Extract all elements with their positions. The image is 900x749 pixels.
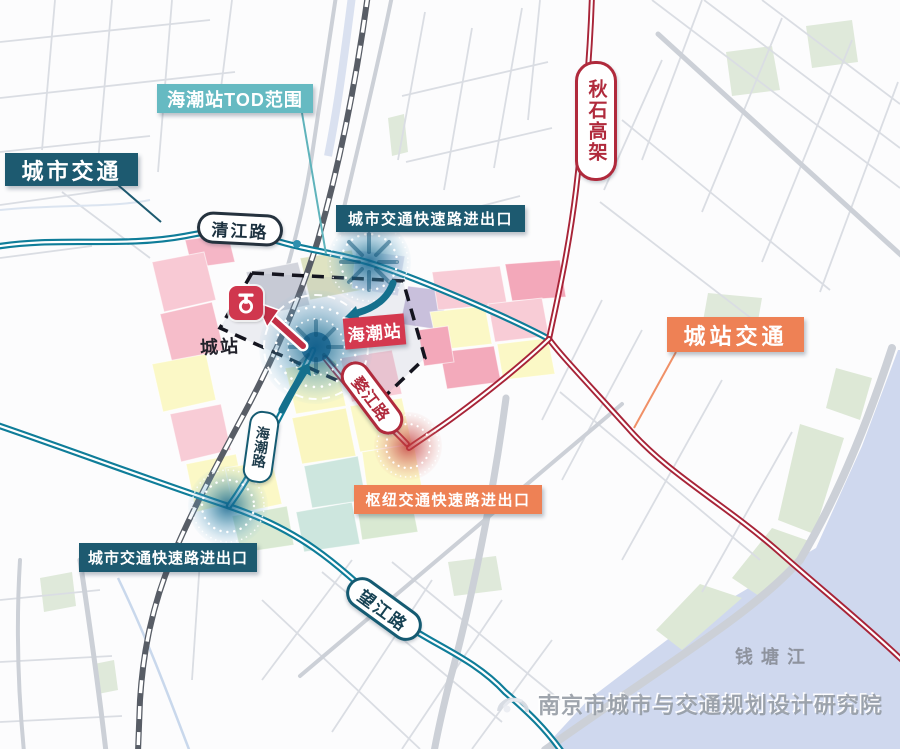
map-canvas <box>0 0 900 749</box>
urban-expressway-exit-label-top: 城市交通快速路进出口 <box>336 205 525 232</box>
watermark-text: 南京市城市与交通规划设计研究院 <box>538 688 883 720</box>
watermark: 南京市城市与交通规划设计研究院 <box>494 687 883 721</box>
china-railway-emblem <box>233 290 259 316</box>
urban-traffic-legend: 城市交通 <box>5 153 138 186</box>
chengzhan-station-label: 城站 <box>199 332 240 360</box>
road-node-dot <box>293 240 301 248</box>
tod-planning-map: 海潮站TOD范围 城市交通 城市交通快速路进出口 海潮站 城站交通 枢纽交通快速… <box>0 0 900 749</box>
qiushi-viaduct-pill: 秋石高架 <box>575 61 617 181</box>
hub-expressway-exit-label: 枢纽交通快速路进出口 <box>354 485 542 514</box>
tod-scope-label: 海潮站TOD范围 <box>157 84 313 113</box>
railway-station-icon <box>229 286 263 320</box>
urban-expressway-exit-label-bottom: 城市交通快速路进出口 <box>79 543 257 572</box>
qingjiang-road-pill: 清江路 <box>196 211 284 247</box>
institute-logo-icon <box>494 687 532 721</box>
chengzhan-traffic-legend: 城站交通 <box>667 317 804 352</box>
qiantang-river-label: 钱塘江 <box>735 643 813 669</box>
haichao-station-label: 海潮站 <box>343 313 406 349</box>
expressway-exit-node-top <box>327 220 411 304</box>
